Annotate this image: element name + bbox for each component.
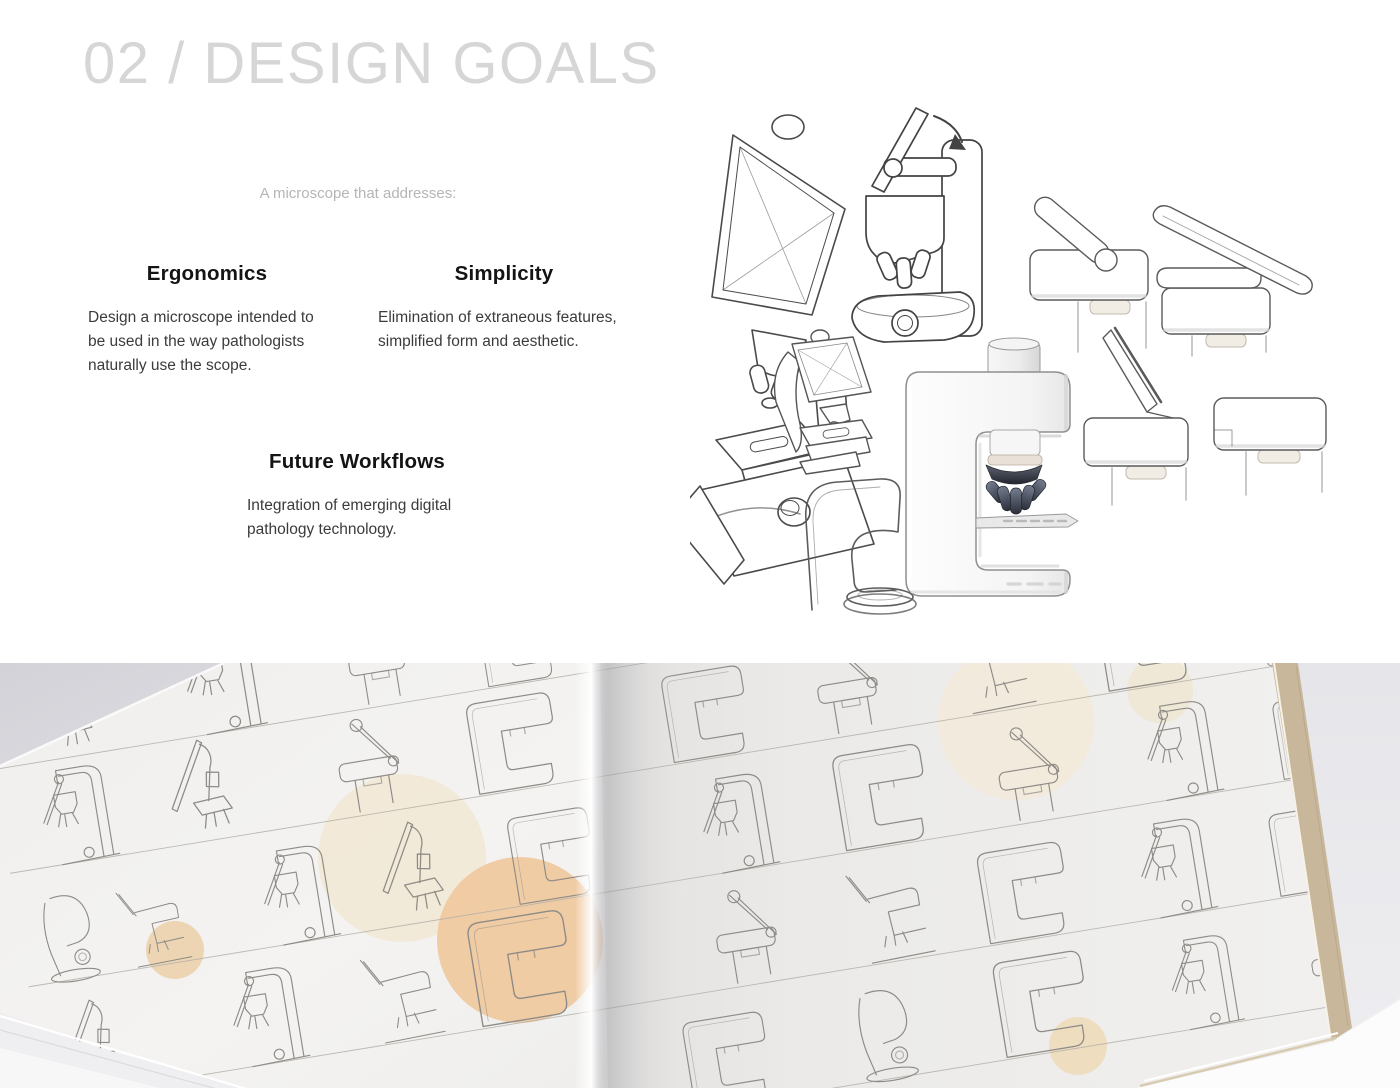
clamp-body-plain-sketch — [1214, 398, 1326, 495]
clamp-body-rod-arm-sketch — [1030, 193, 1148, 352]
goal-simplicity-title: Simplicity — [378, 262, 630, 286]
goal-future-workflows: Future Workflows Integration of emerging… — [247, 450, 467, 542]
portfolio-page: { "page": { "title": "02 / DESIGN GOALS"… — [0, 0, 1400, 1088]
section-subtitle: A microscope that addresses: — [203, 185, 513, 202]
microscope-concept-sketches — [690, 90, 1340, 620]
clamp-body-flat-tablet-sketch — [1153, 206, 1312, 356]
goal-future-workflows-title: Future Workflows — [247, 450, 467, 474]
c-clamp-microscope-render — [906, 338, 1078, 596]
goal-ergonomics: Ergonomics Design a microscope intended … — [88, 262, 326, 378]
clamp-body-folded-screen-sketch — [1084, 328, 1188, 505]
goal-simplicity: Simplicity Elimination of extraneous fea… — [378, 262, 630, 354]
goal-future-workflows-body: Integration of emerging digital patholog… — [247, 494, 467, 542]
goal-ergonomics-body: Design a microscope intended to be used … — [88, 306, 326, 378]
goal-simplicity-body: Elimination of extraneous features, simp… — [378, 306, 630, 354]
goal-ergonomics-title: Ergonomics — [88, 262, 326, 286]
book-gutter-shadow — [575, 663, 693, 1088]
page-title: 02 / DESIGN GOALS — [83, 30, 660, 97]
design-goals-section: 02 / DESIGN GOALS A microscope that addr… — [0, 0, 1400, 663]
highlight-circle-small-left — [146, 921, 204, 979]
column-microscope-tilting-screen-sketch — [852, 108, 982, 342]
sketchbook-photo — [0, 663, 1400, 1088]
